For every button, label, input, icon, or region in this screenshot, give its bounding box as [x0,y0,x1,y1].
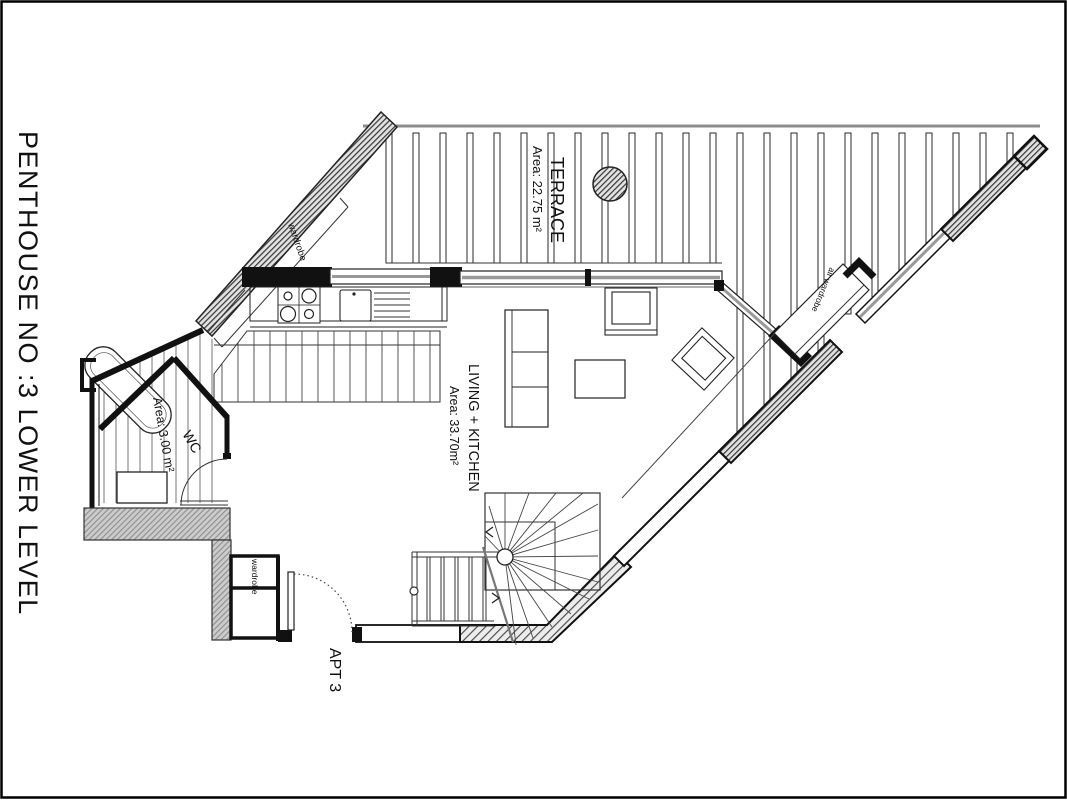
terrace-label: TERRACE [547,157,567,243]
entry-door [278,572,362,642]
living-area-label: Area: 33.70m² [447,386,461,465]
window-joint [585,269,591,286]
coffee-table [575,360,625,398]
wardrobe-lower-label: wardrobe [250,558,260,595]
sofa [505,310,548,427]
window-joint [714,280,724,291]
living-room: LIVING + KITCHEN Area: 33.70m² [447,288,734,492]
wc-room: WC Area: 3.00 m² [78,325,231,510]
kitchen-sink [340,290,371,321]
floor-plan-page: PENTHOUSE NO :3 LOWER LEVEL TERRACE Area… [0,0,1067,800]
nw-closet-cap [340,198,348,207]
armchair [605,288,657,335]
wc-label: WC [179,428,205,456]
terrace-area-label: Area: 22.75 m² [530,146,545,233]
wc-area-label: Area: 3.00 m² [150,396,177,473]
door-jamb [352,627,362,642]
armchair-rotated [672,328,734,390]
kitchen-drainer [374,293,410,317]
winder-treads [485,493,598,645]
stair-center-post [497,549,513,565]
north-wall-windows [242,267,722,287]
spiral-staircase [483,493,600,645]
nw-closet-cap [214,338,222,347]
bottom-wall [356,625,460,642]
direction-arrow [486,527,493,537]
entry-zone: wardrobe APT 3 [84,508,362,692]
entry-wardrobe: wardrobe [231,556,278,641]
wc-fixture [117,472,167,503]
tree-planter [593,167,627,201]
handrail-post [410,587,418,595]
living-label: LIVING + KITCHEN [465,364,481,492]
door-swing-arc [294,574,352,632]
kitchen-hob [278,287,320,323]
door-jamb [278,630,292,642]
wall-pier [430,267,462,287]
hatched-wall-horizontal [84,508,230,540]
se-railing [614,451,729,566]
apartment-label: APT 3 [326,648,343,692]
wall-segment [242,267,332,287]
hatched-wall-vertical [212,540,231,640]
faucet-dot [352,292,355,295]
page-title: PENTHOUSE NO :3 LOWER LEVEL [13,131,43,616]
kitchen-lower-units [208,290,440,402]
kitchen [208,287,447,402]
door-leaf [288,572,294,630]
floor-plan-svg: PENTHOUSE NO :3 LOWER LEVEL TERRACE Area… [0,0,1067,800]
